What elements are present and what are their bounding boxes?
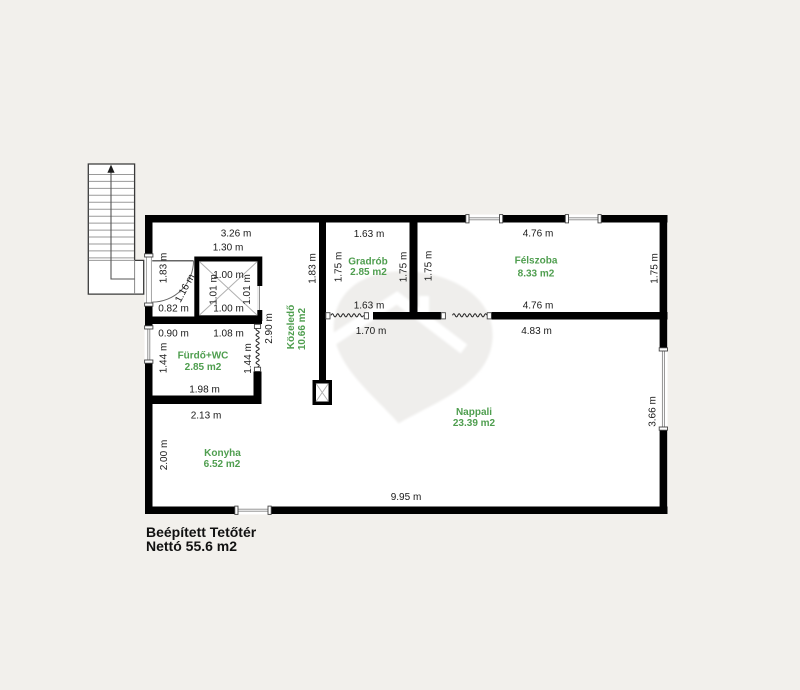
svg-text:4.76 m: 4.76 m [523, 229, 554, 240]
svg-text:23.39 m2: 23.39 m2 [453, 418, 496, 429]
svg-text:Nappali: Nappali [456, 407, 492, 418]
svg-text:2.85 m2: 2.85 m2 [185, 362, 222, 373]
svg-text:Nettó 55.6 m2: Nettó 55.6 m2 [146, 538, 237, 554]
svg-text:9.95 m: 9.95 m [391, 492, 422, 503]
svg-text:0.90 m: 0.90 m [158, 329, 189, 340]
svg-text:4.76 m: 4.76 m [523, 301, 554, 312]
svg-text:1.83 m: 1.83 m [308, 253, 319, 284]
svg-text:1.01 m: 1.01 m [209, 274, 220, 305]
svg-text:1.30 m: 1.30 m [213, 243, 244, 254]
svg-text:1.44 m: 1.44 m [159, 343, 170, 374]
svg-text:3.66 m: 3.66 m [648, 396, 659, 427]
svg-text:1.63 m: 1.63 m [354, 301, 385, 312]
svg-text:6.52 m2: 6.52 m2 [204, 459, 241, 470]
svg-text:2.90 m: 2.90 m [264, 313, 275, 344]
svg-text:1.63 m: 1.63 m [354, 229, 385, 240]
svg-text:2.13 m: 2.13 m [191, 411, 222, 422]
svg-text:0.82 m: 0.82 m [158, 304, 189, 315]
svg-text:1.70 m: 1.70 m [356, 326, 387, 337]
svg-text:1.75 m: 1.75 m [334, 252, 345, 283]
svg-text:10.66 m2: 10.66 m2 [297, 307, 308, 350]
svg-text:Gradrób: Gradrób [348, 257, 387, 268]
svg-text:1.01 m: 1.01 m [242, 274, 253, 305]
svg-text:1.98 m: 1.98 m [189, 385, 220, 396]
svg-text:8.33 m2: 8.33 m2 [518, 269, 555, 280]
svg-text:4.83 m: 4.83 m [521, 326, 552, 337]
svg-text:1.44 m: 1.44 m [243, 343, 254, 374]
svg-text:Fürdő+WC: Fürdő+WC [178, 351, 229, 362]
svg-text:1.75 m: 1.75 m [649, 253, 660, 284]
svg-text:1.75 m: 1.75 m [399, 252, 410, 283]
svg-text:1.83 m: 1.83 m [159, 253, 170, 284]
svg-text:3.26 m: 3.26 m [221, 228, 252, 239]
svg-text:2.00 m: 2.00 m [159, 440, 170, 471]
svg-text:Közeledő: Közeledő [286, 305, 297, 349]
svg-text:2.85 m2: 2.85 m2 [350, 267, 387, 278]
svg-text:Félszoba: Félszoba [515, 256, 558, 267]
svg-text:Konyha: Konyha [204, 448, 241, 459]
svg-text:1.08 m: 1.08 m [213, 329, 244, 340]
svg-text:1.75 m: 1.75 m [424, 251, 435, 282]
